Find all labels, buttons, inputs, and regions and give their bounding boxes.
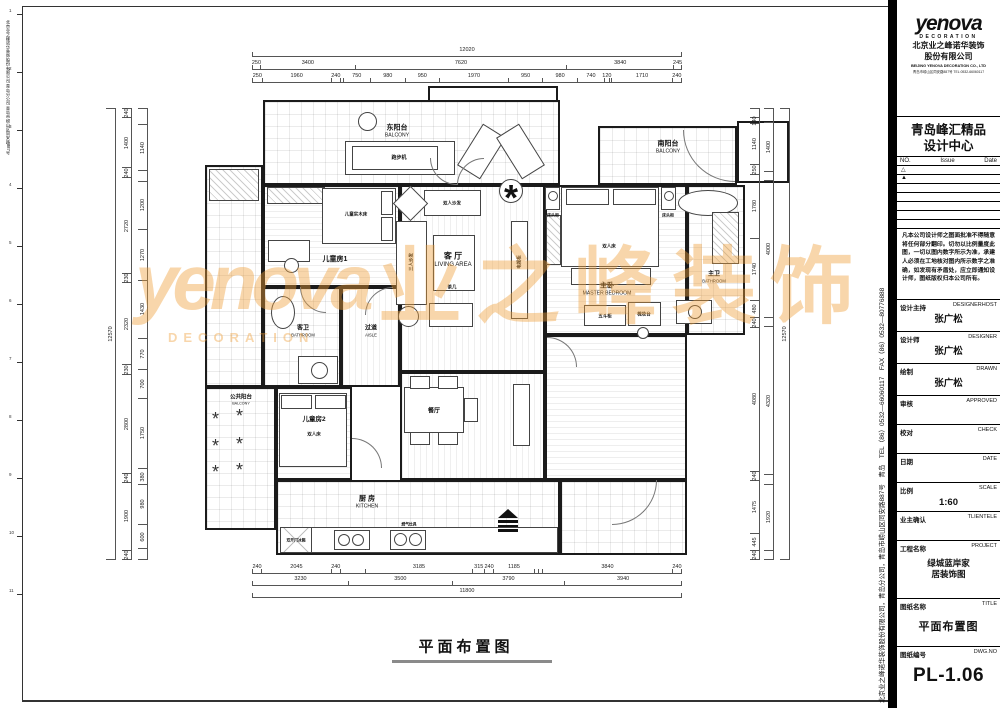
company-address-vertical: 北京业之峰诺华装饰股份有限公司，青岛分公司，青岛市崂山区同安路887号 青岛 T…	[876, 13, 888, 703]
label-kid-room-1: 儿童房1	[323, 256, 348, 264]
ruler-tick	[17, 188, 23, 189]
dim-segment	[764, 318, 773, 327]
dim-segment: 240	[122, 474, 131, 483]
label-dresser-cn: 梳妆台	[637, 311, 651, 316]
dimension-top-mid: 250340076203840245	[252, 61, 682, 70]
field-designerhost: 设计主持DESIGNERHOST张广松	[897, 299, 1000, 331]
ruler-number: 2	[9, 66, 12, 71]
dim-segment: 1400	[764, 123, 773, 172]
dim-value: 3500	[394, 576, 406, 582]
dim-segment: 980	[543, 78, 578, 83]
dim-value: 240	[124, 168, 130, 177]
furniture-kid2-pillow-1	[281, 395, 312, 409]
plant-glyph: *	[236, 440, 243, 450]
label-master-bath-en: BATHROOM	[702, 279, 726, 284]
entry-arrow-bar	[498, 520, 518, 523]
dim-value: 2720	[124, 219, 130, 231]
furniture-table-end	[464, 398, 478, 422]
dim-value: 240	[331, 73, 340, 79]
furniture-kid1-pillow-1	[381, 191, 393, 215]
dim-value: 245	[673, 60, 682, 66]
dim-value: 950	[418, 73, 427, 79]
label-fridge-cn: 双开门冰箱	[287, 539, 306, 544]
ruler-number: 7	[9, 356, 12, 361]
dim-segment: 2320	[122, 283, 131, 365]
dim-value: 2800	[124, 417, 130, 429]
field-label-cn: 图纸编号	[900, 649, 926, 659]
label-nightstand-2-cn: 床头柜	[662, 214, 674, 219]
ruler-tick	[17, 594, 23, 595]
label-kid2-bed: 双人床	[307, 431, 321, 436]
dim-value: 240	[752, 318, 758, 327]
label-aisle: 过道AISLE	[365, 326, 378, 339]
dim-segment: 980	[371, 78, 406, 83]
dim-segment: 770	[138, 339, 147, 370]
dim-segment: 12570	[106, 108, 115, 560]
copyright-notice: 凡本公司设计师之图面批准不得随意将任何部分翻印。切勿以比例量度此图，一切以图内数…	[897, 229, 1000, 299]
dim-value: 1710	[636, 73, 648, 79]
label-kid-room-2: 儿童房2	[302, 416, 325, 424]
furniture-lamp-1	[548, 191, 558, 201]
dim-segment: 1140	[138, 125, 147, 171]
label-living-en: LIVING AREA	[434, 261, 471, 268]
dim-value: 3185	[413, 564, 425, 570]
label-east-balcony-cn: 东阳台	[384, 125, 410, 133]
furniture-planter	[209, 169, 259, 201]
dim-segment: 240	[122, 108, 131, 118]
label-nightstand-1: 床头柜	[547, 214, 559, 219]
field-label-cn: 日期	[900, 456, 913, 466]
dim-value: 1200	[140, 199, 146, 211]
field-label-row: 图纸名称TITLE	[897, 599, 1000, 611]
left-edge-company-text: 北京业之峰诺华装饰股份有限公司 青岛分公司 青岛市崂山区同安路887号	[5, 20, 11, 260]
title-block: yenova DECORATION 北京业之峰诺华装饰 股份有限公司 BEIJI…	[897, 0, 1000, 708]
dim-segment: 700	[138, 370, 147, 399]
label-nightstand-2: 床头柜	[662, 214, 674, 219]
ruler-number: 1	[9, 8, 12, 13]
label-master-bedroom: 主卧MASTER BEDROOM	[581, 283, 634, 298]
dim-segment: 7620	[356, 65, 567, 70]
label-master-bath: 主卫BATHROOM	[701, 272, 727, 285]
label-sofa-3seat: 三人沙发	[408, 253, 413, 271]
label-kid1-bed-cn: 儿童实木床	[345, 211, 368, 216]
field-label-en: SCALE	[979, 485, 997, 495]
dim-segment: 3185	[366, 569, 474, 574]
revision-row	[897, 193, 1000, 202]
company-name-cn-2: 股份有限公司	[897, 52, 1000, 62]
label-tea-table: 茶几	[448, 284, 457, 289]
dim-value: 240	[124, 109, 130, 118]
dim-segment: 1920	[764, 485, 773, 551]
furniture-sink-bowl-2	[352, 534, 364, 546]
ruler-number: 11	[9, 588, 14, 593]
field-scale: 比例SCALE1:60	[897, 482, 1000, 511]
dim-segment: 750	[344, 78, 371, 83]
dim-segment: 315	[473, 569, 485, 574]
dim-value: 1740	[752, 263, 758, 275]
furniture-guest-sink-bowl	[311, 362, 328, 379]
ruler-tick	[17, 14, 23, 15]
label-treadmill: 跑步机	[391, 155, 406, 161]
dim-value: 380	[140, 472, 146, 481]
north-star-glyph: *	[504, 188, 518, 208]
dimension-bottom-total: 11800	[252, 589, 682, 598]
dim-value: 4320	[766, 395, 772, 407]
label-kid-room-2-cn: 儿童房2	[302, 416, 325, 424]
label-south-balcony: 南阳台BALCONY	[655, 141, 681, 156]
field-value: 张广松	[897, 378, 1000, 390]
revision-row: △	[897, 166, 1000, 175]
dim-segment: 240	[332, 569, 341, 574]
label-living-cn: 客 厅	[433, 251, 473, 261]
dimension-bottom-mid: 3230350037903940	[252, 577, 682, 586]
dim-value: 600	[140, 532, 146, 541]
field-drawn: 绘制DRAWN张广松	[897, 363, 1000, 395]
dim-segment	[764, 475, 773, 484]
ruler-tick	[17, 130, 23, 131]
yenova-logo: yenova	[897, 13, 1000, 34]
studio-name-line1: 青岛峰汇精品	[897, 122, 1000, 138]
label-kitchen: 厨 房KITCHEN	[355, 496, 379, 511]
dim-segment: 3400	[261, 65, 356, 70]
dim-value: 700	[140, 379, 146, 388]
dimension-left-inner: 11401200127014307707001750380980600	[138, 108, 148, 560]
label-dresser: 梳妆台	[637, 311, 651, 316]
dim-value: 240	[124, 550, 130, 559]
field-designer: 设计师DESIGNER张广松	[897, 331, 1000, 363]
plant-glyph: *	[212, 415, 219, 425]
dim-value: 1400	[766, 141, 772, 153]
label-master-bath-cn: 主卫	[701, 272, 727, 279]
dim-value: 1430	[140, 303, 146, 315]
field-label-row: 设计师DESIGNER	[897, 332, 1000, 344]
dim-segment: 2045	[262, 569, 332, 574]
label-tv-cabinet: 电视柜	[516, 255, 521, 269]
dim-value: 3840	[601, 564, 613, 570]
dim-value: 250	[252, 60, 261, 66]
dim-segment: 245	[674, 65, 682, 70]
company-name-en: BEIJING YENOVA DECORATION CO., LTD	[897, 64, 1000, 68]
rev-header-issue: Issue	[940, 158, 954, 164]
dim-value: 315	[474, 564, 483, 570]
dim-value: 4080	[752, 393, 758, 405]
dim-value: 240	[252, 564, 261, 570]
furniture-balcony-fan	[358, 112, 377, 131]
furniture-hall-cabinet	[513, 384, 530, 446]
dim-value: 11800	[460, 588, 475, 594]
room-ac-platform	[428, 86, 558, 102]
titleblock-separator	[897, 94, 1000, 117]
label-kid2-bed-cn: 双人床	[307, 431, 321, 436]
field-label-row: 设计主持DESIGNERHOST	[897, 300, 1000, 312]
field-label-cn: 比例	[900, 485, 913, 495]
dim-segment	[764, 172, 773, 182]
dim-value: 480	[752, 304, 758, 313]
furniture-dining-chair-1	[410, 376, 430, 389]
dim-value: 740	[586, 73, 595, 79]
furniture-toilet	[271, 296, 295, 329]
door-kid2	[352, 438, 382, 468]
label-kid-room-1-cn: 儿童房1	[323, 256, 348, 264]
entry-arrow-triangle	[498, 509, 518, 518]
plant-glyph: *	[212, 442, 219, 452]
revision-row	[897, 220, 1000, 229]
dim-value: 230	[124, 365, 130, 374]
furniture-bath-sink-bowl	[688, 305, 702, 319]
drawing-caption: 平面布置图	[418, 636, 513, 657]
label-sofa-3seat-cn: 三人沙发	[408, 253, 413, 271]
furniture-lamp-2	[664, 191, 674, 201]
dim-segment: 11800	[252, 593, 682, 598]
dim-value: 1970	[468, 73, 480, 79]
ruler-tick	[17, 246, 23, 247]
revision-row: ▲	[897, 175, 1000, 184]
dim-segment: 240	[673, 569, 682, 574]
dim-value: 7620	[455, 60, 467, 66]
field-label-en: DESIGNER	[968, 334, 997, 344]
dim-segment: 1185	[494, 569, 535, 574]
dim-value: 1140	[752, 138, 758, 150]
furniture-master-pillow-2	[613, 189, 656, 205]
dim-value: 1185	[508, 564, 520, 570]
dim-segment: 445	[750, 534, 759, 551]
label-tv-cabinet-cn: 电视柜	[516, 255, 521, 269]
rev-header-date: Date	[984, 158, 997, 164]
dim-segment: 1475	[750, 481, 759, 534]
furniture-master-closet	[546, 215, 561, 265]
dim-segment: 1780	[750, 175, 759, 238]
dimension-right-inner: 1401140250178017404802404080240147544524…	[750, 108, 760, 560]
furniture-burner-1	[394, 533, 407, 546]
dim-value: 3790	[502, 576, 514, 582]
label-public-balcony: 公共阳台BALCONY	[230, 394, 252, 405]
dim-value: 3840	[614, 60, 626, 66]
label-stove: 燃气灶具	[401, 523, 416, 528]
field-label-cn: 设计师	[900, 334, 920, 344]
revision-row	[897, 211, 1000, 220]
field-value: 平面布置图	[897, 620, 1000, 634]
dim-segment: 3230	[252, 581, 349, 586]
field-label-en: APPROVED	[966, 398, 997, 408]
ruler-tick	[17, 304, 23, 305]
dim-segment: 3940	[565, 581, 682, 586]
ruler-number: 3	[9, 124, 12, 129]
dim-value: 1140	[140, 142, 146, 154]
field-label-en: DRAWN	[976, 366, 997, 376]
dimension-right-outer: 12570	[780, 108, 790, 560]
field-label-row: 比例SCALE	[897, 483, 1000, 495]
dim-value: 1960	[291, 73, 303, 79]
plant-glyph: *	[212, 468, 219, 478]
dimension-top-inner: 2501960240750980950197095098074012017102…	[252, 74, 682, 83]
field-label-cn: 设计主持	[900, 302, 926, 312]
dim-segment	[341, 569, 366, 574]
dim-segment: 950	[509, 78, 543, 83]
dim-value: 980	[556, 73, 565, 79]
dim-segment: 240	[332, 78, 341, 83]
dim-segment: 230	[122, 365, 131, 374]
label-kitchen-cn: 厨 房	[355, 496, 379, 504]
ruler-tick	[17, 478, 23, 479]
dim-value: 250	[752, 165, 758, 174]
furniture-kid1-pillow-2	[381, 217, 393, 241]
field-value: 张广松	[897, 314, 1000, 326]
field-label-row: 图纸编号DWG.NO	[897, 647, 1000, 659]
revision-row	[897, 202, 1000, 211]
floor-plan: *******东阳台BALCONY南阳台BALCONY跑步机儿童房1儿童实木床客…	[0, 0, 888, 708]
company-name-cn-1: 北京业之峰诺华装饰	[897, 41, 1000, 51]
dim-segment: 240	[485, 569, 494, 574]
label-south-balcony-en: BALCONY	[656, 149, 680, 155]
dim-segment: 1750	[138, 399, 147, 469]
label-master-bedroom-en: MASTER BEDROOM	[583, 291, 632, 297]
dim-value: 2045	[290, 564, 302, 570]
field-value: 张广松	[897, 346, 1000, 358]
company-header: yenova DECORATION 北京业之峰诺华装饰 股份有限公司 BEIJI…	[897, 0, 1000, 94]
label-east-balcony: 东阳台BALCONY	[384, 125, 410, 140]
dim-value: 980	[383, 73, 392, 79]
dim-value: 3230	[294, 576, 306, 582]
label-loveseat-cn: 双人沙发	[443, 200, 461, 205]
field-label-en: DWG.NO	[974, 649, 997, 659]
dim-value: 12570	[782, 326, 788, 341]
dim-segment: 950	[406, 78, 440, 83]
field-project: 工程名称PROJECT绿城蓝岸家 居装饰图	[897, 540, 1000, 598]
field-value: 1:60	[897, 497, 1000, 509]
dim-segment: 1140	[750, 124, 759, 165]
ruler-number: 5	[9, 240, 12, 245]
field-label-en: TLIENTELE	[968, 514, 997, 524]
dim-value: 445	[752, 537, 758, 546]
field-label-cn: 绘制	[900, 366, 913, 376]
revision-table-header: NO. Issue Date	[897, 157, 1000, 166]
furniture-ottoman	[429, 303, 473, 327]
label-guest-bath-en: BATHROOM	[291, 333, 315, 338]
dim-value: 3940	[617, 576, 629, 582]
label-master-bedroom-cn: 主卧	[581, 283, 634, 291]
dim-value: 240	[752, 550, 758, 559]
label-master-bed-cn: 双人床	[602, 243, 616, 248]
dim-value: 1900	[124, 510, 130, 522]
dim-segment: 250	[252, 78, 263, 83]
titleblock-divider-bar	[888, 0, 897, 708]
field-value: 绿城蓝岸家 居装饰图	[897, 558, 1000, 580]
dim-segment: 1970	[440, 78, 509, 83]
dim-segment	[764, 108, 773, 123]
dim-segment: 600	[138, 525, 147, 550]
field-label-cn: 审核	[900, 398, 913, 408]
dim-value: 3400	[302, 60, 314, 66]
dim-segment: 240	[252, 569, 262, 574]
label-east-balcony-en: BALCONY	[385, 133, 409, 139]
label-aisle-en: AISLE	[365, 333, 377, 338]
label-chest-5drawer: 五斗柜	[598, 313, 612, 318]
field-label-cn: 工程名称	[900, 543, 926, 553]
caption-underline	[392, 660, 552, 663]
field-label-row: 绘制DRAWN	[897, 364, 1000, 376]
field-label-en: DATE	[983, 456, 997, 466]
field-value: PL-1.06	[897, 664, 1000, 689]
dim-segment: 1430	[138, 281, 147, 339]
furniture-dining-chair-3	[410, 432, 430, 445]
furniture-tv-cabinet	[511, 221, 528, 319]
dimension-top-total: 12020	[252, 48, 682, 57]
dim-segment: 740	[578, 78, 605, 83]
label-tea-table-cn: 茶几	[448, 284, 457, 289]
dim-segment: 1270	[138, 230, 147, 281]
label-dining: 餐厅	[428, 408, 440, 415]
rev-header-no: NO.	[900, 158, 911, 164]
dim-segment: 4320	[764, 327, 773, 475]
dim-value: 240	[672, 73, 681, 79]
furniture-kid1-chair	[284, 258, 299, 273]
field-label-cn: 校对	[900, 427, 913, 437]
plant-glyph: *	[236, 466, 243, 476]
dim-value: 980	[140, 500, 146, 509]
dim-segment: 2720	[122, 178, 131, 274]
ruler-tick	[17, 362, 23, 363]
dim-segment	[138, 549, 147, 559]
dim-value: 770	[140, 349, 146, 358]
ruler-number: 8	[9, 414, 12, 419]
field-label-cn: 图纸名称	[900, 601, 926, 611]
dim-segment: 240	[122, 168, 131, 177]
dim-segment: 1900	[122, 483, 131, 551]
dim-value: 1475	[752, 501, 758, 513]
ruler-number: 10	[9, 530, 14, 535]
dimension-left-mid: 24014002402720230232023028002401900240	[122, 108, 132, 560]
dimension-right-mid: 1400400043201920	[764, 108, 774, 560]
ruler-number: 6	[9, 298, 12, 303]
ruler-number: 4	[9, 182, 12, 187]
field-title: 图纸名称TITLE平面布置图	[897, 598, 1000, 646]
furniture-kid2-pillow-2	[315, 395, 346, 409]
titleblock-fields: 设计主持DESIGNERHOST张广松设计师DESIGNER张广松绘制DRAWN…	[897, 299, 1000, 708]
label-south-balcony-cn: 南阳台	[655, 141, 681, 149]
furniture-kid1-wardrobe	[267, 187, 325, 204]
label-kid1-bed: 儿童实木床	[345, 211, 368, 216]
field-label-row: 业主确认TLIENTELE	[897, 512, 1000, 524]
field-label-row: 校对CHECK	[897, 425, 1000, 437]
revision-rows: △▲	[897, 166, 1000, 229]
field-approved: 审核APPROVED	[897, 395, 1000, 424]
furniture-master-pillow-1	[566, 189, 609, 205]
dim-segment: 240	[673, 78, 682, 83]
label-treadmill-cn: 跑步机	[391, 155, 406, 161]
furniture-burner-2	[409, 533, 422, 546]
label-loveseat: 双人沙发	[443, 200, 461, 205]
dim-segment	[138, 171, 147, 181]
furniture-sink-bowl-1	[338, 534, 350, 546]
label-fridge: 双开门冰箱	[287, 539, 306, 544]
studio-name: 青岛峰汇精品 设计中心	[897, 117, 1000, 157]
label-master-bed: 双人床	[602, 243, 616, 248]
dim-segment: 480	[750, 301, 759, 319]
dim-segment: 3500	[349, 581, 453, 586]
dim-segment: 380	[138, 469, 147, 485]
dim-value: 240	[124, 473, 130, 482]
dim-value: 240	[672, 564, 681, 570]
field-dwg.no: 图纸编号DWG.NOPL-1.06	[897, 646, 1000, 708]
field-tlientele: 业主确认TLIENTELE	[897, 511, 1000, 540]
field-label-en: TITLE	[982, 601, 997, 611]
dim-segment: 240	[750, 318, 759, 327]
furniture-dining-chair-4	[438, 432, 458, 445]
label-nightstand-1-cn: 床头柜	[547, 214, 559, 219]
dim-segment: 4000	[764, 181, 773, 318]
dim-segment: 1400	[122, 118, 131, 168]
entry-arrow-bar	[498, 525, 518, 528]
